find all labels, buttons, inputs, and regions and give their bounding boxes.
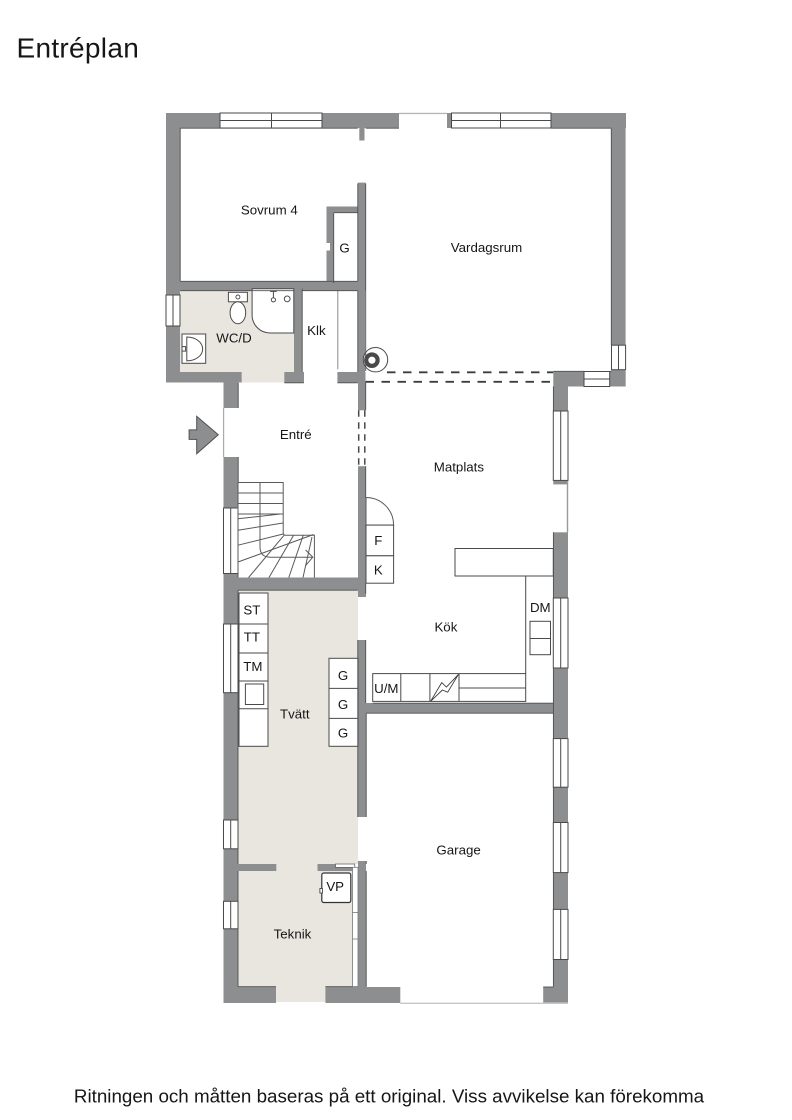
svg-text:K: K	[374, 563, 383, 578]
svg-text:G: G	[338, 668, 348, 683]
svg-text:Klk: Klk	[307, 323, 326, 338]
svg-text:Tvätt: Tvätt	[280, 707, 310, 722]
svg-text:WC/D: WC/D	[216, 331, 251, 346]
svg-text:G: G	[338, 725, 348, 740]
svg-text:F: F	[374, 533, 382, 548]
svg-text:Matplats: Matplats	[434, 460, 485, 475]
svg-text:VP: VP	[326, 879, 344, 894]
svg-text:Entré: Entré	[280, 427, 312, 442]
svg-text:Sovrum 4: Sovrum 4	[241, 203, 298, 218]
svg-text:TT: TT	[244, 629, 260, 644]
svg-text:U/M: U/M	[374, 681, 398, 696]
svg-text:DM: DM	[530, 600, 551, 615]
svg-text:Teknik: Teknik	[274, 926, 312, 941]
svg-text:Garage: Garage	[436, 842, 480, 857]
svg-text:Vardagsrum: Vardagsrum	[451, 240, 522, 255]
svg-text:TM: TM	[243, 659, 262, 674]
svg-text:Entréplan: Entréplan	[17, 33, 140, 64]
svg-text:G: G	[339, 240, 349, 255]
svg-text:Kök: Kök	[434, 620, 457, 635]
svg-text:ST: ST	[243, 603, 260, 618]
svg-text:G: G	[338, 697, 348, 712]
svg-text:Ritningen och måtten baseras p: Ritningen och måtten baseras på ett orig…	[74, 1085, 705, 1106]
